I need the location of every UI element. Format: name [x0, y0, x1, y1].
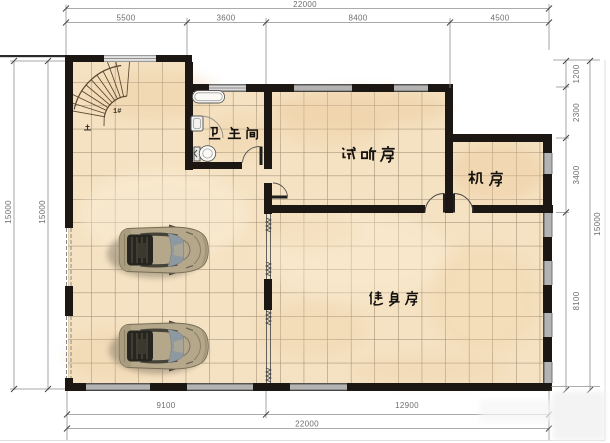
svg-text:9100: 9100	[157, 401, 176, 410]
svg-text:8400: 8400	[349, 14, 368, 23]
svg-text:15000: 15000	[38, 200, 47, 224]
svg-text:1200: 1200	[572, 64, 581, 83]
svg-text:22000: 22000	[293, 0, 317, 9]
svg-text:4500: 4500	[491, 14, 510, 23]
svg-text:12900: 12900	[395, 401, 419, 410]
svg-text:3400: 3400	[572, 165, 581, 184]
svg-text:15000: 15000	[593, 212, 602, 236]
svg-text:8100: 8100	[572, 291, 581, 310]
svg-text:15000: 15000	[4, 200, 13, 224]
svg-text:22000: 22000	[295, 420, 319, 429]
svg-text:3600: 3600	[217, 14, 236, 23]
svg-text:2300: 2300	[572, 103, 581, 122]
svg-text:1#: 1#	[113, 108, 121, 116]
svg-text:5500: 5500	[117, 14, 136, 23]
